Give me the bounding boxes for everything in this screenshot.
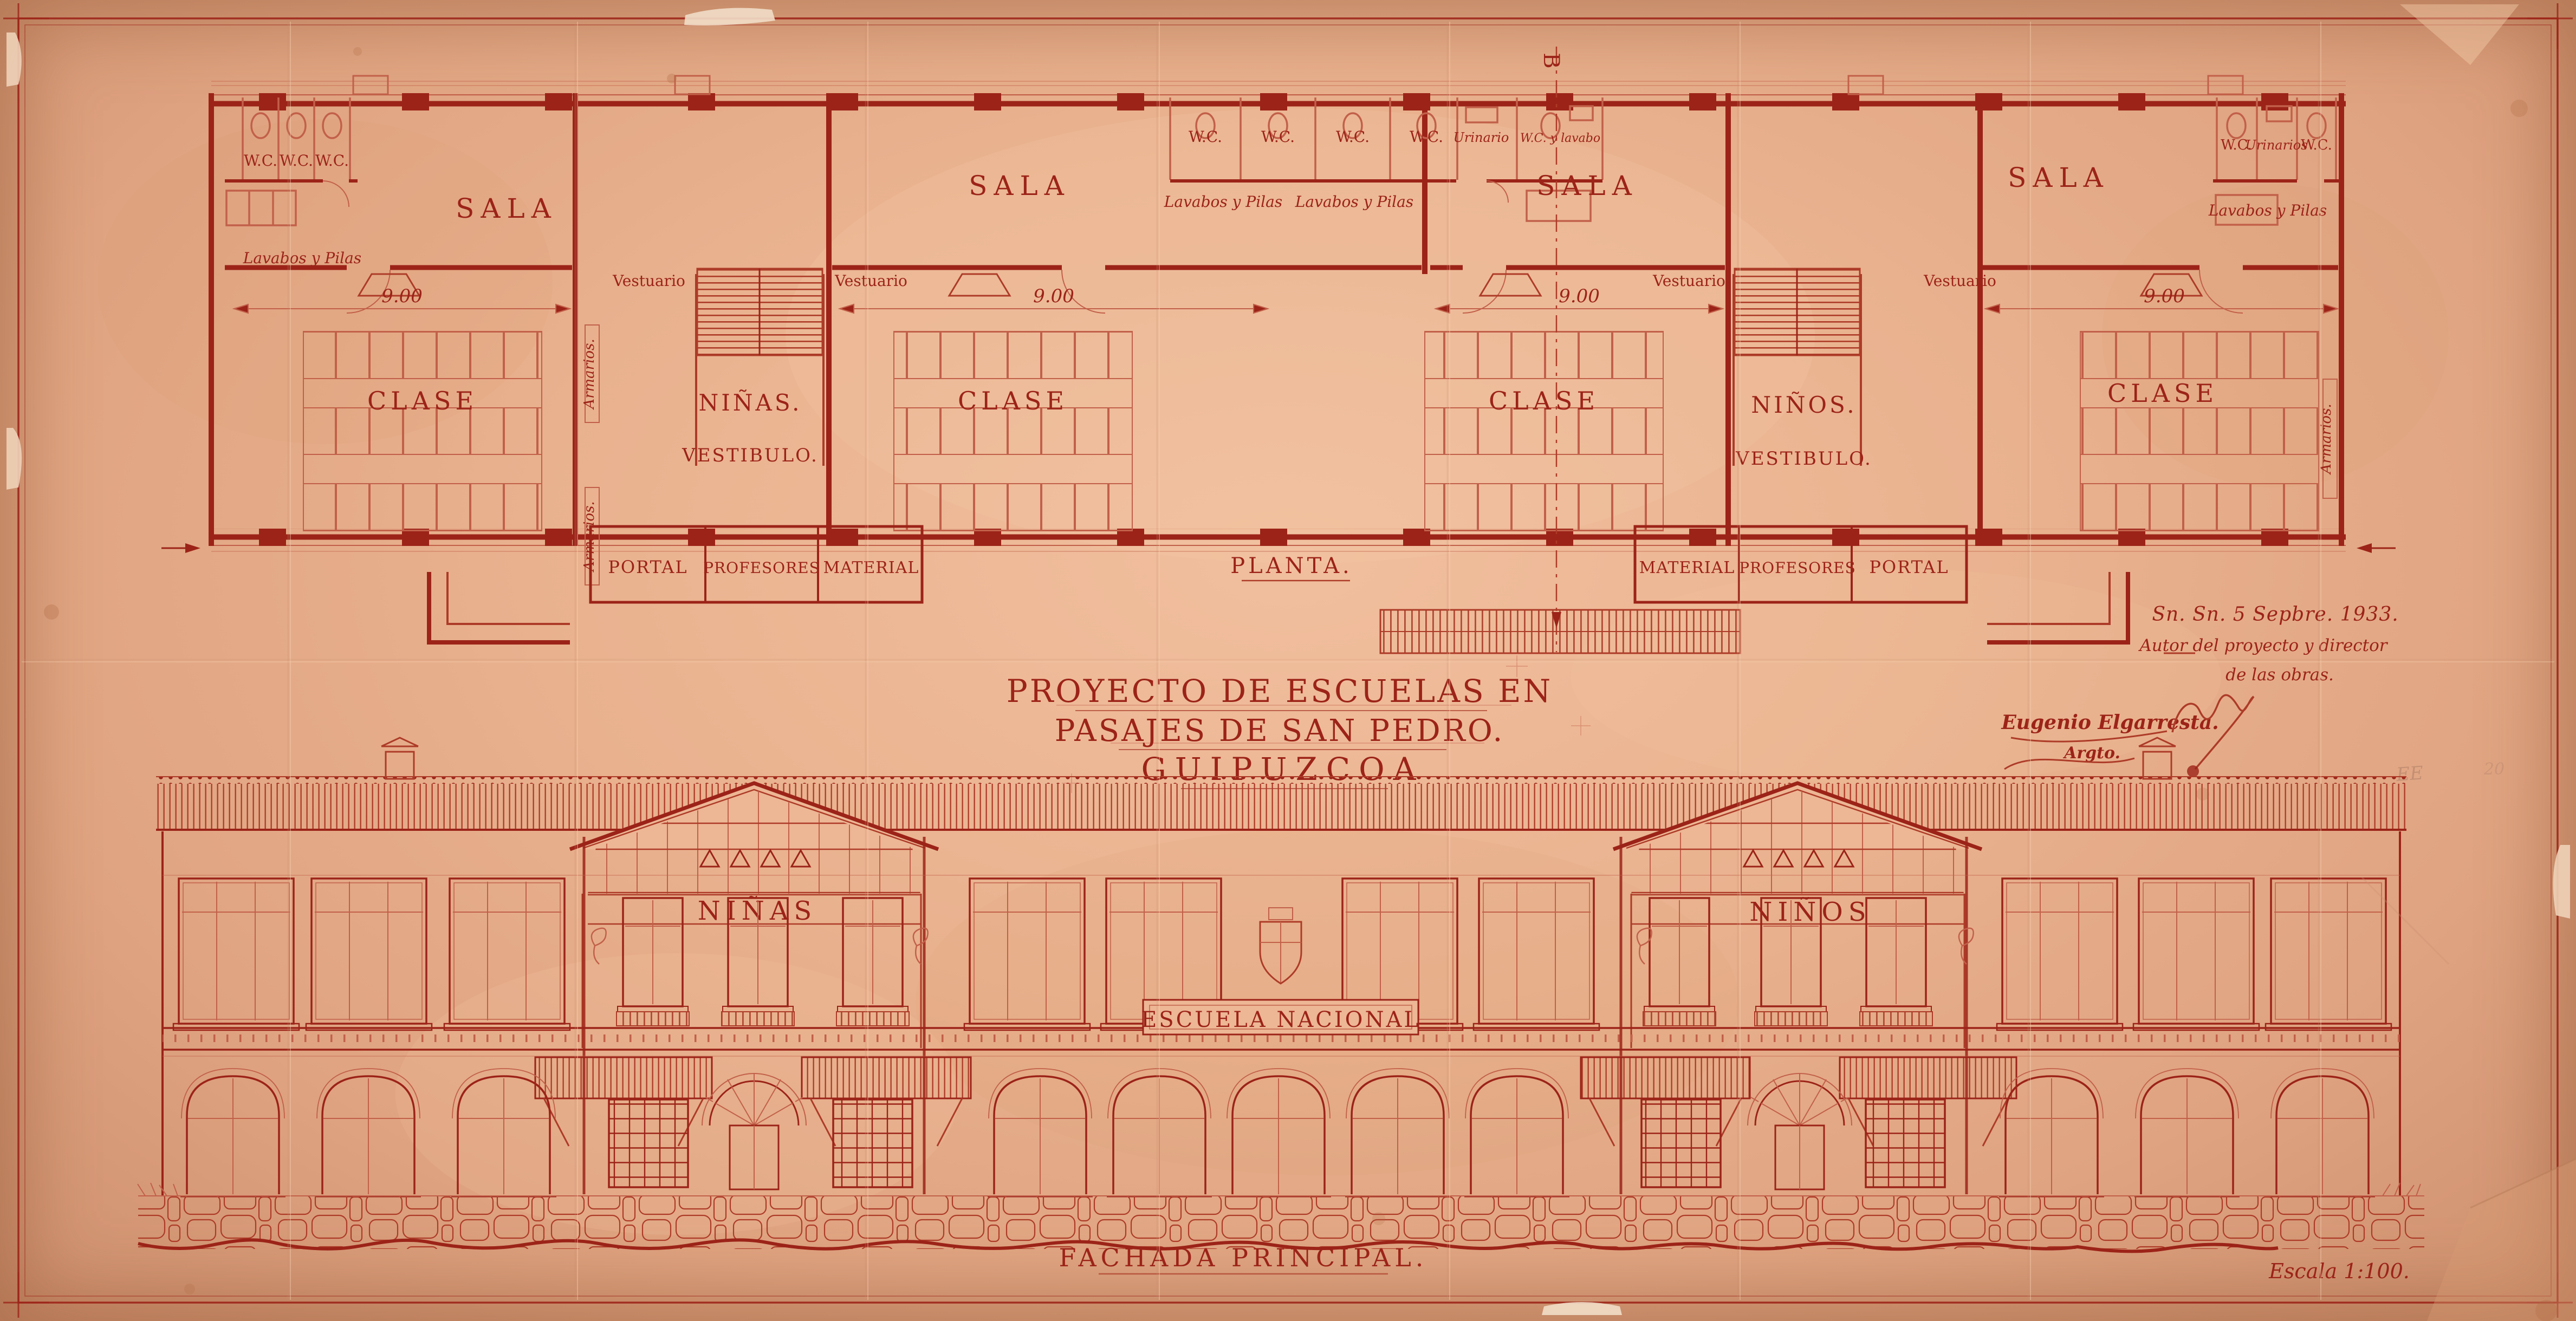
plan-label-wc-5: W.C. [1261, 128, 1295, 146]
plan-label-lavabos-1: Lavabos y Pilas [243, 249, 361, 267]
plan-label-wc-1: W.C. [244, 152, 277, 170]
elevation-caption: FACHADA PRINCIPAL. [1059, 1243, 1428, 1272]
plan-label-urinarios: Urinarios [2245, 138, 2307, 153]
plan-label-wc-3: W.C. [315, 152, 349, 170]
plan-label-clase-1: CLASE [367, 386, 478, 415]
plan-dim-1: 9.00 [381, 285, 423, 307]
blueprint-drawing: SALA SALA SALA SALA CLASE CLASE CLASE CL… [0, 0, 2576, 1321]
annotation-date: Sn. Sn. 5 Sepbre. 1933. [2152, 603, 2398, 626]
plan-label-vestuario-2: Vestuario [834, 272, 907, 290]
plan-label-lavabos-2: Lavabos y Pilas [1164, 193, 1282, 211]
plan-dim-4: 9.00 [2144, 285, 2185, 307]
blueprint-sheet: SALA SALA SALA SALA CLASE CLASE CLASE CL… [0, 0, 2576, 1321]
plan-label-wc-9: W.C. [2301, 137, 2332, 153]
plan-label-portal-r: PORTAL [1869, 557, 1949, 577]
plan-label-sala-3: SALA [1536, 170, 1638, 201]
plan-label-ninos: NIÑOS. [1751, 391, 1857, 418]
plan-label-lavabos-4: Lavabos y Pilas [2208, 201, 2327, 219]
plan-label-armarios-2: Armarios. [581, 501, 598, 572]
plan-label-wc-lavabo: W.C. y lavabo [1520, 132, 1600, 145]
plan-label-vestibulo-r: VESTIBULO. [1735, 448, 1872, 470]
plan-label-profesores-l: PROFESORES [703, 559, 820, 577]
plan-label-profesores-r: PROFESORES [1739, 559, 1856, 577]
plan-label-material-l: MATERIAL [823, 558, 919, 577]
title-block: PROYECTO DE ESCUELAS EN PASAJES DE SAN P… [1007, 673, 1553, 789]
plan-dim-3: 9.00 [1559, 285, 1600, 307]
signature-role: Argto. [2062, 744, 2120, 763]
plan-label-sala-1: SALA [456, 193, 557, 224]
title-line2: PASAJES DE SAN PEDRO. [1055, 713, 1505, 749]
plan-label-ninas: NIÑAS. [698, 389, 802, 416]
plan-label-wc-7: W.C. [1410, 128, 1443, 146]
annotation-author-2: de las obras. [2225, 665, 2334, 685]
pencil-note-b: 20 [2483, 760, 2504, 779]
plan-label-clase-4: CLASE [2107, 379, 2218, 408]
signature-name: Eugenio Elgarresta. [2001, 711, 2218, 734]
title-line1: PROYECTO DE ESCUELAS EN [1007, 673, 1553, 710]
plan-label-wc-4: W.C. [1189, 128, 1222, 146]
elevation-plaque: ESCUELA NACIONAL [1141, 1007, 1420, 1032]
plan-label-wc-6: W.C. [1336, 128, 1370, 146]
plan-label-urinario: Urinario [1454, 130, 1509, 145]
plan-label-armarios-1: Armarios. [581, 339, 598, 409]
plan-label-clase-3: CLASE [1489, 386, 1599, 415]
scale-label: Escala 1:100. [2268, 1259, 2410, 1283]
paper-texture [98, 108, 2449, 1235]
plan-label-material-r: MATERIAL [1639, 558, 1735, 577]
plan-label-wc-2: W.C. [280, 152, 313, 170]
plan-label-lavabos-3: Lavabos y Pilas [1295, 193, 1413, 211]
plan-label-vestuario-1: Vestuario [612, 272, 685, 290]
plan-label-sala-4: SALA [2008, 162, 2110, 193]
plan-label-vestuario-3: Vestuario [1652, 272, 1725, 290]
plan-label-vestuario-4: Vestuario [1923, 272, 1996, 290]
plan-label-vestibulo-l: VESTIBULO. [682, 445, 819, 466]
plan-caption: PLANTA. [1230, 554, 1352, 578]
arched-doorway-right [1748, 1073, 1852, 1189]
plan-label-portal-l: PORTAL [608, 557, 687, 577]
plan-section-letter: B [1539, 53, 1563, 68]
elevation-label-ninos: NIÑOS [1749, 896, 1871, 927]
plan-label-sala-2: SALA [969, 170, 1070, 201]
plan-dim-2: 9.00 [1033, 285, 1074, 307]
plan-label-clase-2: CLASE [958, 386, 1068, 415]
